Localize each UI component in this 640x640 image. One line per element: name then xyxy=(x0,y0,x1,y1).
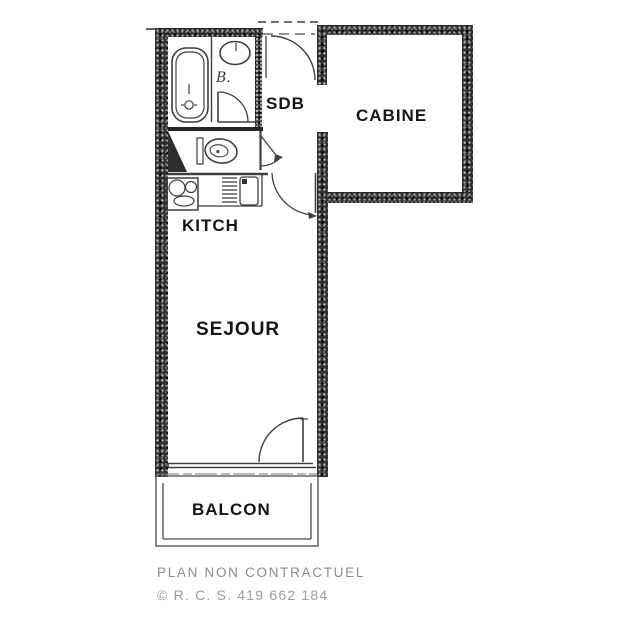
room-label-balcon: BALCON xyxy=(192,500,271,520)
room-label-sdb: SDB xyxy=(266,94,305,114)
washbasin xyxy=(220,42,250,65)
room-label-sejour: SEJOUR xyxy=(196,319,280,341)
plan-disclaimer-text: PLAN NON CONTRACTUEL xyxy=(157,565,365,580)
bathtub xyxy=(172,48,208,122)
wall-wc-chamfer xyxy=(168,131,187,172)
floor-plan: SDB CABINE KITCH SEJOUR BALCON B. PLAN N… xyxy=(0,0,640,640)
plan-linework xyxy=(0,0,640,640)
stove xyxy=(167,178,198,210)
bathroom-door xyxy=(218,92,258,122)
dish-drainer xyxy=(222,178,237,202)
balcony-door xyxy=(259,418,308,462)
wall-bathroom-bottom xyxy=(168,127,263,131)
room-label-cabine: CABINE xyxy=(356,106,427,126)
toilet xyxy=(197,137,239,165)
kitchen-sink xyxy=(240,177,258,205)
kitchen-door xyxy=(272,173,317,219)
entry-door xyxy=(266,36,315,80)
room-label-kitch: KITCH xyxy=(182,216,239,236)
basin-annotation: B. xyxy=(216,70,231,86)
sejour-balcony-window xyxy=(157,464,317,475)
registration-number-text: © R. C. S. 419 662 184 xyxy=(157,587,328,603)
wc-door xyxy=(261,136,283,166)
